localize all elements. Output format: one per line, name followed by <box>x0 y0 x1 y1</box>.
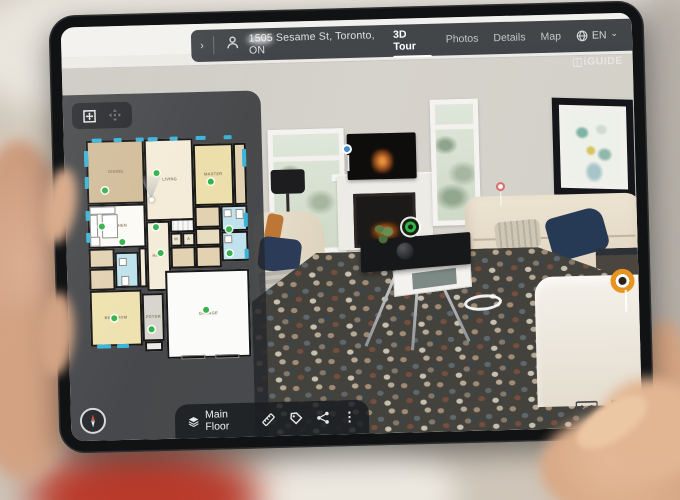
divider <box>213 37 214 55</box>
floorplan-room <box>170 246 196 269</box>
floorplan-window-marker <box>245 249 249 259</box>
floorplan-room-a: A <box>182 232 195 246</box>
tab-3d-tour[interactable]: 3D Tour <box>393 28 431 58</box>
room-label: W <box>174 237 178 241</box>
floorplan-room <box>138 247 147 287</box>
floorplan-window-marker <box>92 139 102 143</box>
floorplan-window-marker <box>244 213 248 227</box>
floorplan-room <box>195 245 222 268</box>
iguide-watermark: iGUIDE <box>572 55 622 68</box>
back-chevron-icon[interactable]: › <box>191 40 213 53</box>
property-address[interactable]: 1505 Sesame St, Toronto, ON <box>249 29 394 57</box>
floorplan-window-marker <box>86 233 90 243</box>
floorplan-window-marker <box>148 137 158 141</box>
floorplan-window-marker <box>117 344 129 348</box>
floorplan-room <box>89 268 116 291</box>
floorplan-fixture <box>121 276 129 286</box>
compass-icon[interactable] <box>80 407 107 434</box>
layers-icon <box>188 415 200 428</box>
tablet-device: DININGLIVINGMASTERKITCHENHALLWABEDROOMFO… <box>48 0 654 453</box>
floorplan-room-w: W <box>170 232 182 246</box>
floorplan-room-dining: DINING <box>86 139 146 204</box>
language-selector[interactable]: EN ⌄ <box>576 29 618 42</box>
tab-details[interactable]: Details <box>493 31 525 44</box>
room-label: A <box>187 237 190 241</box>
floorplan-fixture <box>224 235 232 243</box>
floorplan-drawing[interactable]: DININGLIVINGMASTERKITCHENHALLWABEDROOMFO… <box>84 133 254 381</box>
floorplan-window-marker <box>196 136 206 140</box>
floorplan-fixture <box>235 209 243 219</box>
expand-floorplan-button[interactable] <box>79 106 100 127</box>
chevron-down-icon: ⌄ <box>610 28 618 39</box>
more-options-button[interactable]: ⋮ <box>343 409 356 425</box>
tab-map[interactable]: Map <box>540 30 561 43</box>
nav-tabs: 3D Tour Photos Details Map EN ⌄ <box>393 23 632 53</box>
floorplan-panel: DININGLIVINGMASTERKITCHENHALLWABEDROOMFO… <box>62 90 269 441</box>
floorplan-window-marker <box>170 137 178 141</box>
pano-position-marker[interactable] <box>153 224 159 230</box>
pano-position-marker[interactable] <box>149 326 155 332</box>
tag-button[interactable] <box>289 411 303 425</box>
room-label: GARAGE <box>199 311 218 316</box>
bg-blur-bottom-white <box>240 440 460 500</box>
floorplan-window-marker <box>136 137 144 141</box>
floorplan-room <box>194 205 221 228</box>
floorplan-room-garage: GARAGE <box>165 269 251 359</box>
floorplan-room <box>170 218 195 233</box>
floorplan-room-foyer: FOYER <box>142 293 165 342</box>
floorplan-window-marker <box>242 149 246 167</box>
wall-artwork <box>552 98 636 197</box>
room-label: DINING <box>108 170 124 174</box>
floorplan-window-marker <box>114 138 122 142</box>
floorplan-window-marker <box>84 151 88 167</box>
room-label: FOYER <box>146 315 161 319</box>
floorplan-fixture <box>90 237 100 247</box>
plant <box>372 219 397 248</box>
pan-floorplan-button[interactable] <box>105 105 126 126</box>
floorplan-window-marker <box>224 135 232 139</box>
bottom-toolbar: Main Floor ⋮ <box>175 400 370 439</box>
patterned-pillow <box>494 219 541 251</box>
floorplan-window-marker <box>97 344 111 348</box>
tablet-screen: DININGLIVINGMASTERKITCHENHALLWABEDROOMFO… <box>61 13 643 442</box>
room-label: MASTER <box>204 172 223 177</box>
floorplan-window-marker <box>85 177 89 189</box>
floorplan-room-master: MASTER <box>193 143 235 206</box>
iguide-logo-icon <box>572 57 581 66</box>
globe-icon <box>576 30 588 42</box>
floorplan-fixture <box>119 258 127 266</box>
floorplan-fixture <box>215 354 239 359</box>
television <box>347 132 417 180</box>
tab-photos[interactable]: Photos <box>446 33 479 46</box>
measure-button[interactable] <box>261 412 276 427</box>
bg-blur-red-object <box>30 448 260 500</box>
floorplan-fixture <box>223 209 231 217</box>
room-label: LIVING <box>162 178 177 182</box>
floorplan-fixture <box>89 206 115 215</box>
floorplan-window-marker <box>85 211 89 221</box>
screenshot-stage: DININGLIVINGMASTERKITCHENHALLWABEDROOMFO… <box>0 0 680 500</box>
floorplan-room <box>195 227 221 246</box>
language-label: EN <box>592 29 607 41</box>
floor-selector-label: Main Floor <box>205 408 248 433</box>
share-button[interactable] <box>316 411 330 425</box>
floorplan-room <box>145 341 163 351</box>
floorplan-fixture <box>181 355 205 360</box>
floor-selector[interactable]: Main Floor <box>188 408 249 434</box>
current-position-dot <box>149 197 154 202</box>
agent-person-icon[interactable] <box>225 35 241 55</box>
table-lamp <box>270 169 305 194</box>
floorplan-room <box>88 248 115 269</box>
pano-position-marker[interactable] <box>208 179 214 185</box>
floorplan-tools <box>72 102 133 130</box>
